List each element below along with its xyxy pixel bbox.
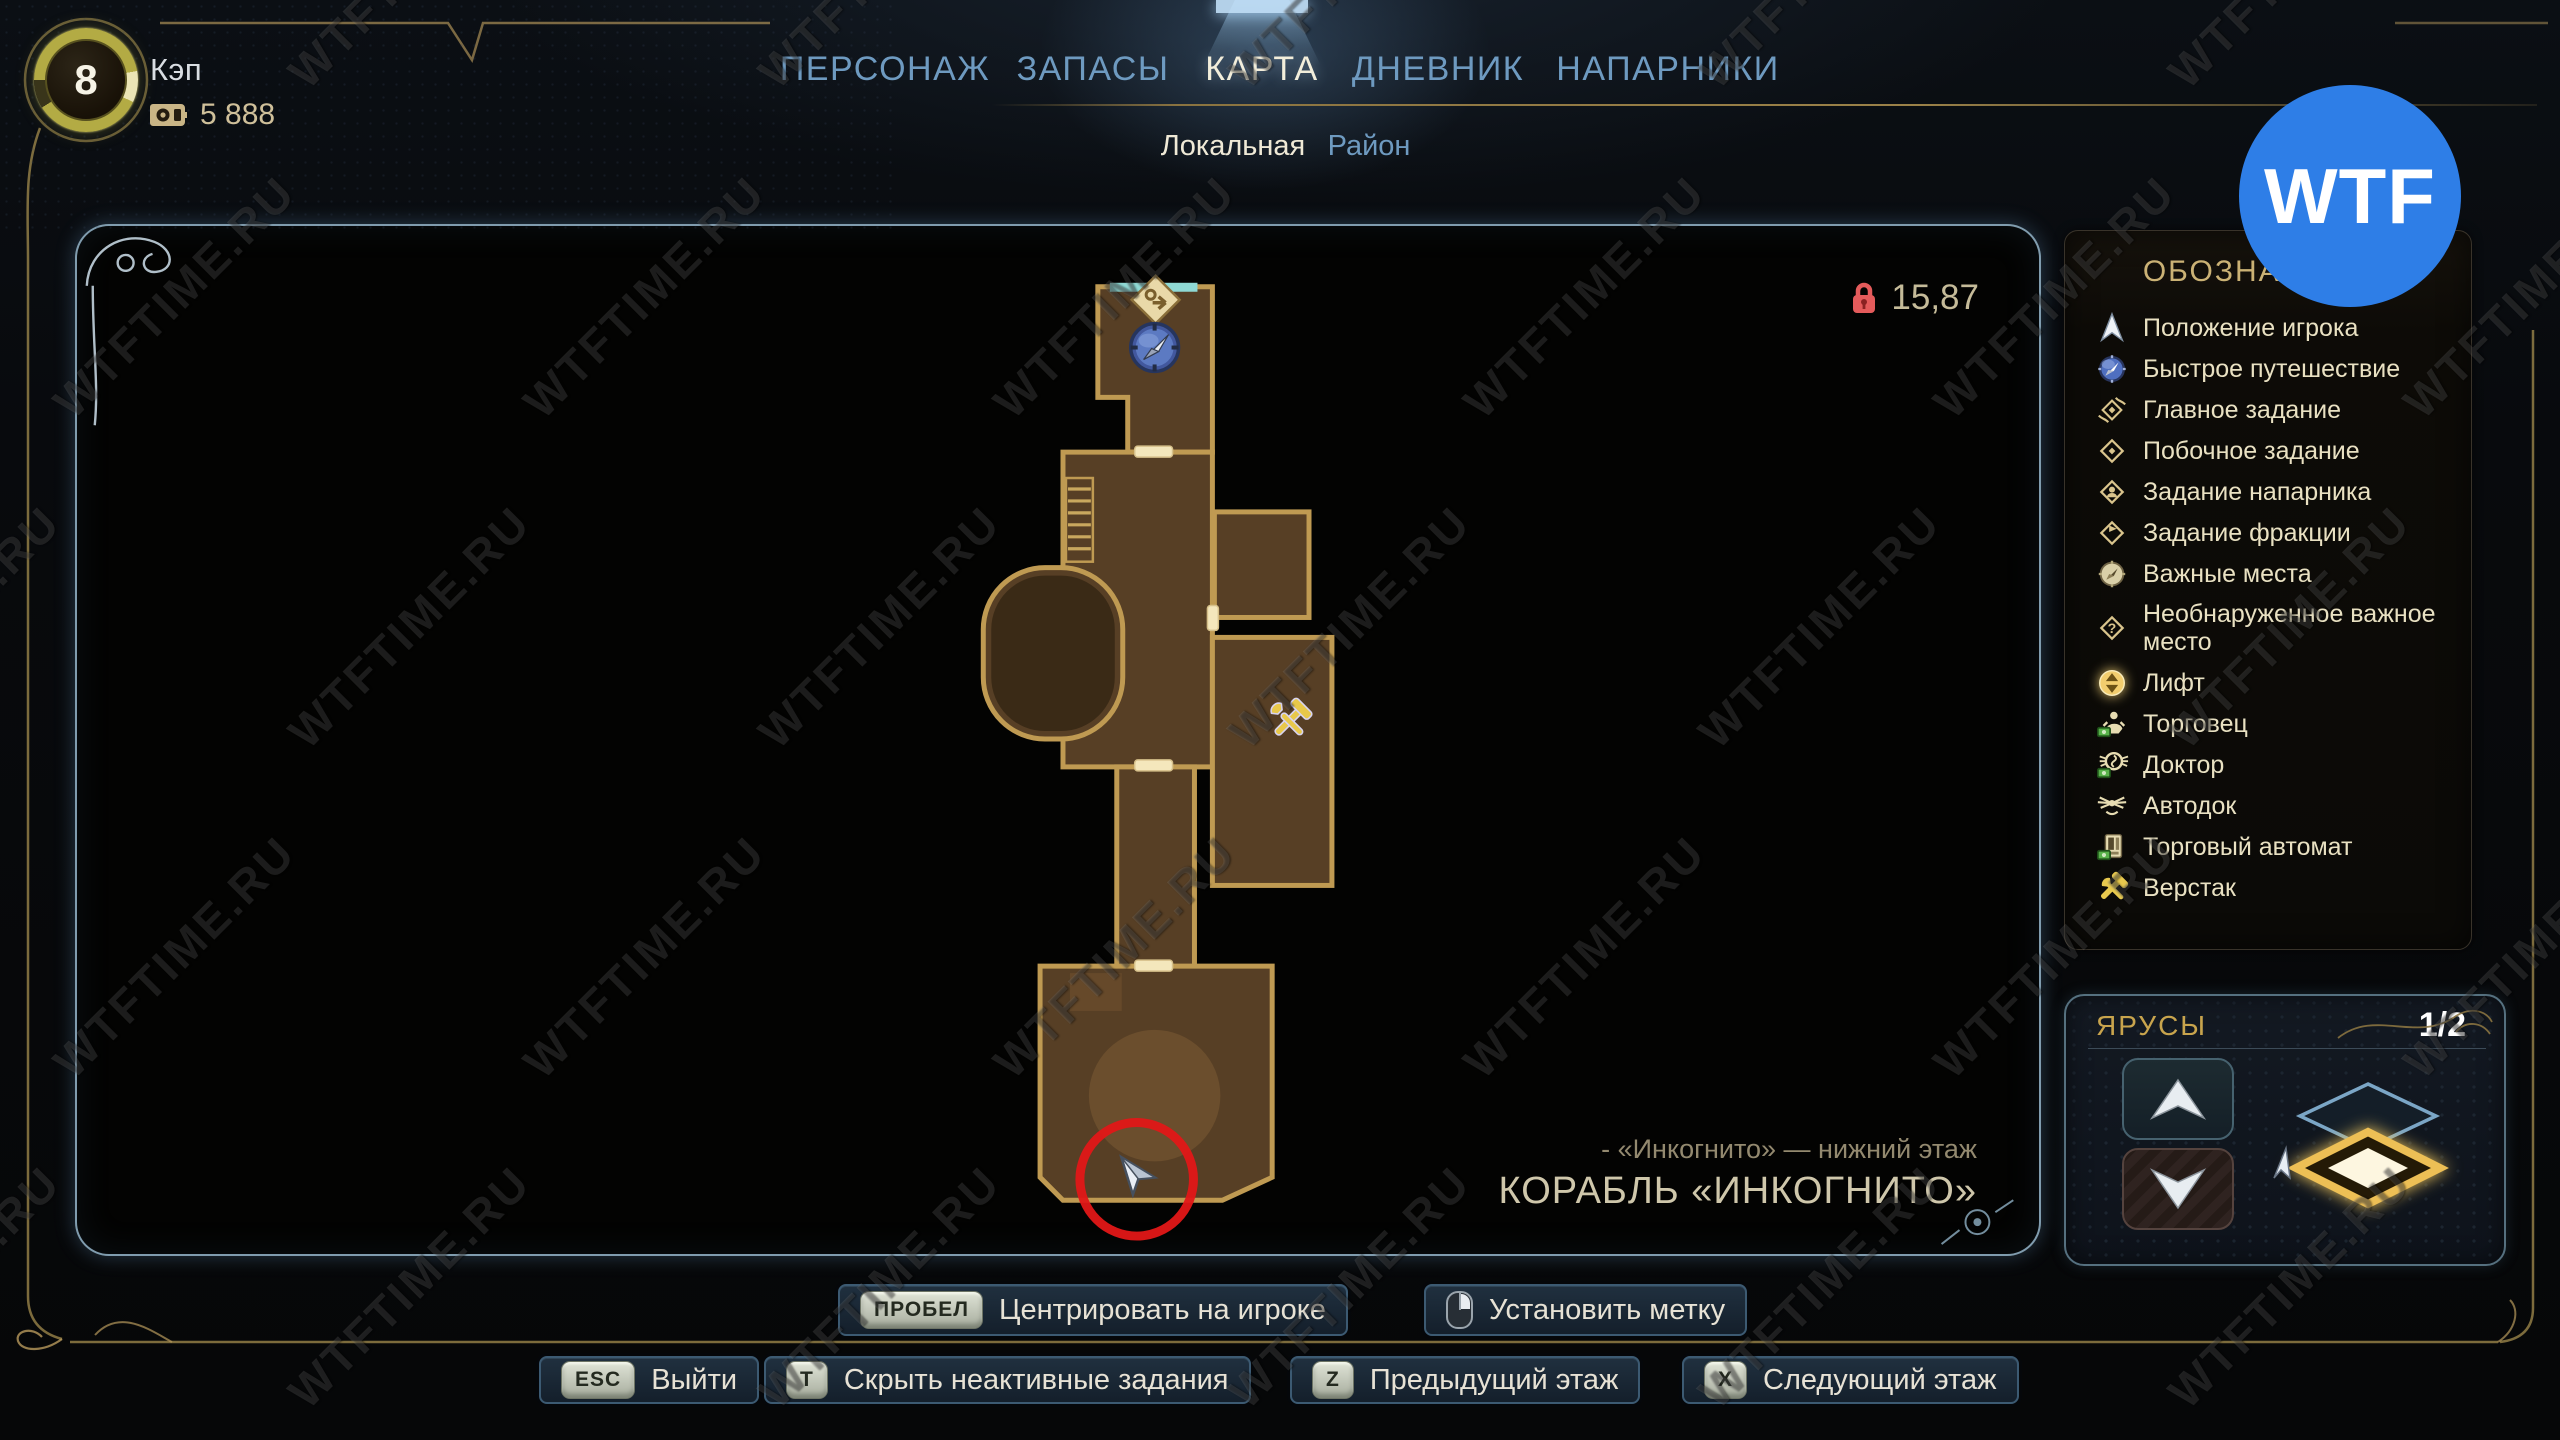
tab-character[interactable]: ПЕРСОНАЖ xyxy=(780,50,990,89)
map-location-subtitle: - «Инкогнито» — нижний этаж xyxy=(1601,1134,1977,1165)
legend-item-vending-machine: Торговый автомат xyxy=(2093,826,2461,867)
doctor-icon xyxy=(2093,746,2131,784)
important-place-icon xyxy=(2093,555,2131,593)
player-position-icon xyxy=(2093,309,2131,347)
faction-quest-icon xyxy=(2093,514,2131,552)
game-screen: 8 Кэп 5 888 ПЕРСОНАЖ ЗАПАСЫ КАРТА ДНЕВНИ… xyxy=(0,0,2560,1440)
merchant-icon xyxy=(2093,705,2131,743)
previous-floor-button[interactable]: Z Предыдущий этаж xyxy=(1290,1356,1640,1404)
currency-display: 5 888 xyxy=(150,98,275,132)
elevator-icon xyxy=(2093,664,2131,702)
place-marker-button[interactable]: Установить метку xyxy=(1424,1284,1747,1336)
map-scale-display: 15,87 xyxy=(1849,278,1979,318)
mouse-icon xyxy=(1446,1291,1473,1329)
legend-item-undiscovered-place: ? Необнаруженное важное место xyxy=(2093,594,2461,662)
legend-item-important-place: Важные места xyxy=(2093,553,2461,594)
map-viewport[interactable]: 15,87 - «Инкогнито» — нижний этаж КОРАБЛ… xyxy=(75,224,2041,1256)
fast-travel-marker xyxy=(1131,324,1179,372)
legend-item-fast-travel: Быстрое путешествие xyxy=(2093,348,2461,389)
legend-list: Положение игрока Быстрое путешествие Гла… xyxy=(2093,307,2461,908)
hide-inactive-quests-button[interactable]: T Скрыть неактивные задания xyxy=(764,1356,1251,1404)
legend-item-companion-quest: Задание напарника xyxy=(2093,471,2461,512)
undiscovered-place-icon: ? xyxy=(2093,609,2131,647)
legend-item-side-quest: Побочное задание xyxy=(2093,430,2461,471)
floors-flourish-decoration xyxy=(2336,1002,2496,1048)
fast-travel-icon xyxy=(2093,350,2131,388)
door-marker xyxy=(1135,446,1173,457)
legend-item-merchant: Торговец xyxy=(2093,703,2461,744)
projector-source xyxy=(1216,0,1308,13)
side-quest-icon xyxy=(2093,432,2131,470)
oval-room-floor xyxy=(991,576,1115,731)
legend-item-doctor: Доктор xyxy=(2093,744,2461,785)
map-room xyxy=(1214,512,1309,618)
ladder-marker xyxy=(1066,478,1093,562)
floors-panel: ЯРУСЫ 1/2 xyxy=(2064,994,2506,1266)
esc-key-badge: ESC xyxy=(561,1361,635,1399)
currency-icon xyxy=(150,100,190,130)
legend-item-main-quest: Главное задание xyxy=(2093,389,2461,430)
vending-machine-icon xyxy=(2093,828,2131,866)
currency-amount: 5 888 xyxy=(200,98,275,132)
player-level-badge: 8 xyxy=(34,28,138,132)
tab-companions[interactable]: НАПАРНИКИ xyxy=(1556,50,1779,89)
floor-patch xyxy=(1070,973,1122,1011)
header-dot-texture xyxy=(0,0,900,230)
arrow-up-icon xyxy=(2146,1074,2210,1124)
map-location-title: КОРАБЛЬ «ИНКОГНИТО» xyxy=(1499,1170,1977,1213)
legend-panel: ОБОЗНАЧЕНИЯ Положение игрока Быстрое пут… xyxy=(2064,230,2472,950)
floor-down-button[interactable] xyxy=(2122,1148,2234,1230)
current-floor-arrow xyxy=(2274,1148,2290,1178)
floors-divider xyxy=(2088,1048,2486,1049)
lock-icon xyxy=(1849,280,1879,316)
legend-item-workbench: Верстак xyxy=(2093,867,2461,908)
arrow-down-icon xyxy=(2146,1164,2210,1214)
legend-item-elevator: Лифт xyxy=(2093,662,2461,703)
player-level-value: 8 xyxy=(74,56,97,104)
svg-text:?: ? xyxy=(2108,621,2117,637)
next-floor-button[interactable]: X Следующий этаж xyxy=(1682,1356,2019,1404)
main-quest-icon xyxy=(2093,391,2131,429)
map-room xyxy=(1117,767,1195,968)
floor-up-button[interactable] xyxy=(2122,1058,2234,1140)
exit-button[interactable]: ESC Выйти xyxy=(539,1356,759,1404)
player-name: Кэп xyxy=(150,52,202,88)
door-marker xyxy=(1135,960,1173,971)
z-key-badge: Z xyxy=(1312,1361,1354,1399)
map-zoom-value: 15,87 xyxy=(1891,278,1979,318)
legend-item-player-position: Положение игрока xyxy=(2093,307,2461,348)
floors-title: ЯРУСЫ xyxy=(2096,1010,2207,1042)
tab-journal[interactable]: ДНЕВНИК xyxy=(1352,50,1524,89)
tab-inventory[interactable]: ЗАПАСЫ xyxy=(1017,50,1170,89)
center-on-player-button[interactable]: ПРОБЕЛ Центрировать на игроке xyxy=(838,1284,1348,1336)
wtf-logo: WTF xyxy=(2239,85,2461,307)
subtab-region[interactable]: Район xyxy=(1328,130,1411,163)
x-key-badge: X xyxy=(1704,1361,1747,1399)
legend-item-autodoc: Автодок xyxy=(2093,785,2461,826)
floor-layers-indicator xyxy=(2256,1074,2476,1224)
door-marker xyxy=(1135,760,1173,771)
subtab-local[interactable]: Локальная xyxy=(1161,130,1306,163)
legend-item-faction-quest: Задание фракции xyxy=(2093,512,2461,553)
t-key-badge: T xyxy=(786,1361,828,1399)
panel-corner-flourish xyxy=(87,238,170,425)
ship-map xyxy=(77,226,2039,1254)
companion-quest-icon xyxy=(2093,473,2131,511)
workbench-icon xyxy=(2093,869,2131,907)
autodoc-icon xyxy=(2093,787,2131,825)
map-room xyxy=(1212,637,1332,885)
spacebar-key-badge: ПРОБЕЛ xyxy=(860,1291,983,1329)
tab-map[interactable]: КАРТА xyxy=(1205,50,1318,89)
engine-circle xyxy=(1089,1030,1220,1161)
door-marker xyxy=(1207,606,1218,631)
